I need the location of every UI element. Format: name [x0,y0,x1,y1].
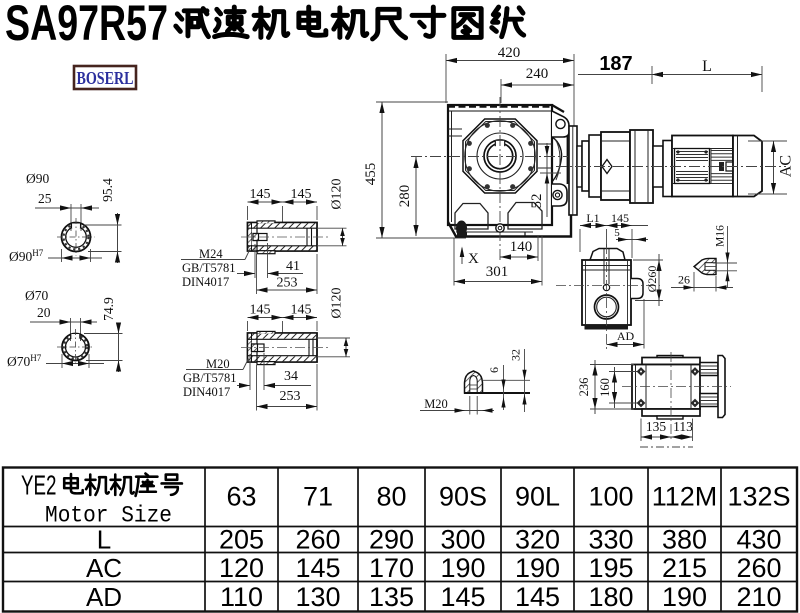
svg-text:145: 145 [250,303,271,318]
svg-text:25: 25 [38,191,52,206]
svg-text:L1: L1 [586,211,599,225]
svg-text:41: 41 [286,259,300,274]
svg-text:GB/T5781: GB/T5781 [182,261,235,275]
svg-text:190: 190 [515,553,560,583]
svg-text:420: 420 [498,45,521,61]
svg-text:190: 190 [662,582,707,612]
svg-text:110: 110 [220,582,263,612]
svg-text:71: 71 [303,482,333,512]
svg-text:112M: 112M [652,482,718,512]
svg-text:187: 187 [599,53,632,75]
svg-text:Ø70: Ø70 [25,288,48,303]
svg-text:205: 205 [219,525,264,555]
svg-text:95.4: 95.4 [100,178,115,202]
svg-text:145: 145 [250,187,271,202]
svg-text:GB/T5781: GB/T5781 [183,371,236,385]
svg-text:260: 260 [736,553,781,583]
svg-text:YE2: YE2 [21,470,57,501]
svg-text:Ø120: Ø120 [330,287,345,318]
svg-text:34: 34 [284,369,298,384]
svg-text:180: 180 [588,582,633,612]
svg-text:SA97R57: SA97R57 [5,0,168,51]
svg-text:380: 380 [662,525,707,555]
svg-text:90L: 90L [515,482,560,512]
svg-text:120: 120 [219,553,264,583]
svg-text:L: L [97,525,111,555]
svg-text:145: 145 [515,582,560,612]
svg-text:X: X [468,251,479,267]
svg-text:430: 430 [736,525,781,555]
svg-text:AD: AD [86,582,122,612]
svg-text:160: 160 [598,378,612,397]
svg-text:Ø120: Ø120 [330,178,345,209]
svg-text:145: 145 [440,582,485,612]
svg-text:253: 253 [280,389,301,404]
svg-text:290: 290 [369,525,414,555]
svg-text:190: 190 [440,553,485,583]
svg-text:5: 5 [614,227,620,239]
svg-text:M24: M24 [199,247,223,261]
svg-text:63: 63 [226,482,256,512]
svg-text:135: 135 [369,582,414,612]
svg-text:M20: M20 [206,357,230,371]
svg-text:140: 140 [510,239,533,255]
svg-text:Ø70H7: Ø70H7 [7,353,42,369]
svg-text:L: L [702,58,712,75]
svg-text:240: 240 [526,66,549,82]
svg-text:210: 210 [736,582,781,612]
svg-text:236: 236 [577,378,591,397]
svg-text:260: 260 [295,525,340,555]
svg-text:AC: AC [86,553,122,583]
svg-text:DIN4017: DIN4017 [183,385,230,399]
svg-text:301: 301 [486,264,509,280]
svg-text:320: 320 [515,525,560,555]
svg-text:330: 330 [588,525,633,555]
svg-text:80: 80 [376,482,406,512]
svg-text:32: 32 [509,349,523,361]
svg-text:M16: M16 [715,225,727,247]
svg-text:455: 455 [363,163,379,186]
svg-text:113: 113 [673,419,693,434]
svg-text:74.9: 74.9 [101,297,116,321]
svg-text:20: 20 [37,305,51,320]
svg-text:135: 135 [646,419,667,434]
svg-text:DIN4017: DIN4017 [182,275,229,289]
svg-text:100: 100 [588,482,633,512]
svg-text:195: 195 [588,553,633,583]
svg-text:130: 130 [295,582,340,612]
svg-text:145: 145 [291,187,312,202]
svg-text:300: 300 [440,525,485,555]
svg-text:AD: AD [617,329,635,343]
svg-text:BOSERL: BOSERL [77,68,134,88]
svg-text:145: 145 [295,553,340,583]
svg-text:Ø260: Ø260 [645,266,659,293]
svg-text:170: 170 [369,553,414,583]
svg-text:90S: 90S [439,482,487,512]
svg-text:253: 253 [277,276,298,291]
svg-text:Ø90H7: Ø90H7 [9,248,44,264]
svg-text:280: 280 [397,185,413,208]
svg-text:M20: M20 [424,397,448,411]
svg-text:6: 6 [487,367,501,373]
svg-text:26: 26 [678,273,690,287]
svg-text:52: 52 [529,194,545,209]
svg-text:145: 145 [291,303,312,318]
svg-text:145: 145 [611,211,629,225]
svg-text:Ø90: Ø90 [26,171,49,186]
svg-text:AC: AC [778,155,795,177]
svg-text:215: 215 [662,553,707,583]
svg-text:132S: 132S [727,482,790,512]
